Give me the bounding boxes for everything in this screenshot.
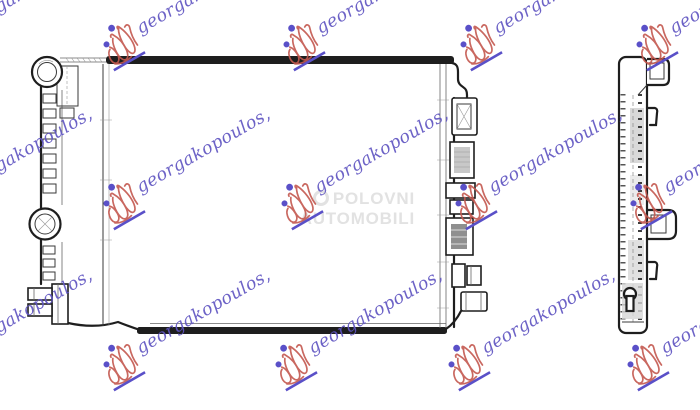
side-clip-upper [647, 108, 657, 125]
bottom-right-mount [446, 292, 487, 329]
side-clip-lower [647, 262, 657, 279]
radiator-top-bar [106, 56, 454, 64]
drain-plug [30, 209, 61, 240]
upper-hose-connector [452, 98, 477, 135]
radiator-product-image: POLOVNI AUTOMOBILI georgak [0, 0, 700, 410]
side-keyhole-slot [622, 283, 643, 319]
badge-text-1: POLOVNI [333, 189, 415, 208]
inlet-port [32, 57, 62, 87]
